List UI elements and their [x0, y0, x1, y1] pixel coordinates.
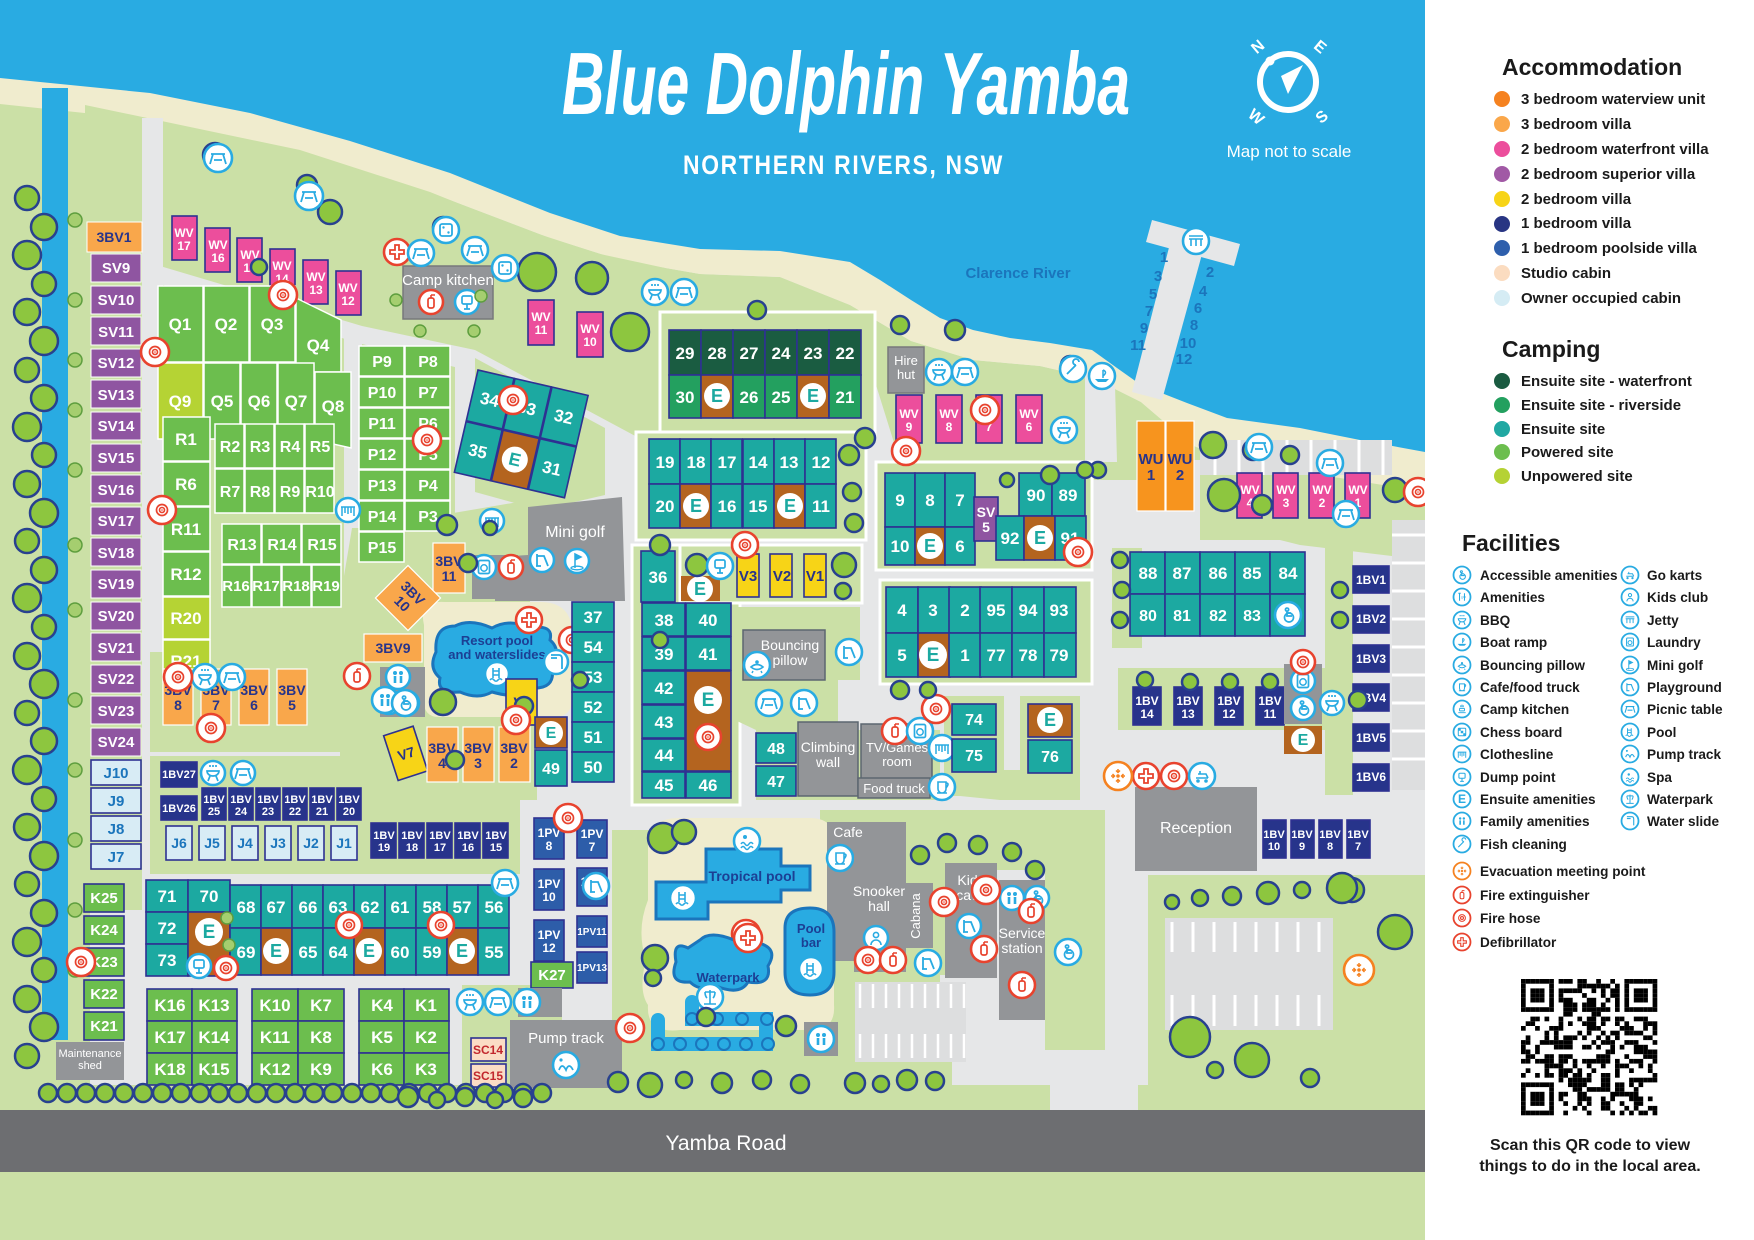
svg-text:Map not to scale: Map not to scale	[1227, 142, 1352, 161]
svg-text:R18: R18	[282, 578, 310, 595]
svg-text:Hirehut: Hirehut	[894, 353, 918, 382]
svg-text:Camp kitchen: Camp kitchen	[402, 272, 494, 289]
svg-text:49: 49	[542, 761, 560, 778]
svg-text:76: 76	[1041, 749, 1059, 766]
svg-text:Fish cleaning: Fish cleaning	[1480, 837, 1567, 852]
svg-text:E: E	[1458, 792, 1466, 806]
svg-text:27: 27	[740, 344, 759, 363]
svg-text:V1: V1	[806, 568, 824, 585]
svg-text:SV13: SV13	[98, 387, 135, 404]
svg-text:P15: P15	[368, 540, 397, 557]
svg-text:3: 3	[1154, 268, 1162, 285]
svg-text:E: E	[694, 579, 706, 599]
svg-text:15: 15	[749, 497, 768, 516]
svg-text:Studio cabin: Studio cabin	[1521, 265, 1611, 282]
svg-text:85: 85	[1243, 564, 1262, 583]
svg-text:64: 64	[329, 943, 348, 962]
svg-text:K8: K8	[310, 1028, 332, 1047]
svg-text:E: E	[363, 941, 375, 961]
svg-text:Q7: Q7	[285, 392, 308, 411]
svg-text:Jetty: Jetty	[1647, 613, 1679, 628]
svg-text:Cafe: Cafe	[833, 824, 863, 840]
svg-text:K4: K4	[371, 996, 393, 1015]
svg-text:Q9: Q9	[169, 392, 192, 411]
svg-text:E: E	[270, 941, 282, 961]
svg-text:R1: R1	[175, 430, 197, 449]
svg-text:V2: V2	[773, 568, 791, 585]
svg-text:J10: J10	[103, 765, 128, 782]
svg-text:52: 52	[584, 698, 603, 717]
svg-text:SV10: SV10	[98, 292, 135, 309]
svg-text:19: 19	[656, 453, 675, 472]
svg-text:E: E	[203, 922, 216, 943]
svg-text:Powered site: Powered site	[1521, 444, 1614, 461]
svg-text:Bouncing pillow: Bouncing pillow	[1480, 658, 1585, 673]
svg-text:Servicestation: Servicestation	[999, 925, 1046, 956]
svg-text:88: 88	[1139, 564, 1158, 583]
svg-text:90: 90	[1027, 486, 1046, 505]
svg-text:44: 44	[655, 746, 674, 765]
svg-text:26: 26	[740, 388, 759, 407]
svg-text:Go karts: Go karts	[1647, 568, 1702, 583]
svg-text:J4: J4	[237, 835, 253, 851]
svg-text:1BV2: 1BV2	[1356, 612, 1386, 626]
svg-text:37: 37	[584, 608, 603, 627]
svg-text:77: 77	[987, 646, 1006, 665]
svg-text:K1: K1	[415, 996, 437, 1015]
svg-text:K10: K10	[259, 996, 290, 1015]
svg-text:Pump track: Pump track	[1647, 747, 1721, 762]
svg-text:1BV26: 1BV26	[162, 803, 196, 815]
svg-text:72: 72	[158, 919, 177, 938]
svg-text:3: 3	[928, 601, 937, 620]
svg-text:83: 83	[1243, 608, 1261, 625]
svg-text:K13: K13	[198, 996, 229, 1015]
svg-text:K14: K14	[198, 1028, 230, 1047]
svg-text:47: 47	[767, 774, 785, 791]
svg-text:59: 59	[423, 943, 442, 962]
svg-text:Q8: Q8	[322, 397, 345, 416]
svg-text:Mini golf: Mini golf	[545, 524, 605, 541]
svg-text:9: 9	[895, 491, 904, 510]
svg-text:1BV27: 1BV27	[162, 769, 196, 781]
svg-text:J2: J2	[303, 835, 319, 851]
svg-text:10: 10	[891, 537, 910, 556]
svg-text:J5: J5	[204, 835, 220, 851]
svg-text:K12: K12	[259, 1060, 290, 1079]
svg-text:40: 40	[699, 611, 718, 630]
svg-text:21: 21	[836, 388, 855, 407]
svg-text:50: 50	[584, 758, 603, 777]
svg-text:Clarence River: Clarence River	[965, 265, 1070, 282]
svg-text:SV19: SV19	[98, 576, 135, 593]
svg-text:82: 82	[1209, 608, 1227, 625]
svg-text:Water slide: Water slide	[1647, 814, 1719, 829]
svg-text:94: 94	[1019, 601, 1038, 620]
svg-text:K24: K24	[90, 922, 118, 939]
svg-text:R19: R19	[312, 578, 340, 595]
svg-text:P8: P8	[418, 354, 438, 371]
svg-text:R6: R6	[175, 475, 197, 494]
svg-text:18: 18	[687, 453, 706, 472]
svg-text:R16: R16	[222, 578, 250, 595]
svg-text:SV9: SV9	[102, 260, 130, 277]
svg-text:K16: K16	[154, 996, 185, 1015]
svg-text:Q4: Q4	[307, 336, 330, 355]
svg-text:86: 86	[1209, 564, 1228, 583]
svg-text:2: 2	[960, 601, 969, 620]
svg-text:E: E	[784, 496, 796, 516]
svg-text:Pool: Pool	[1647, 725, 1676, 740]
svg-text:1: 1	[1160, 249, 1168, 266]
svg-text:SC15: SC15	[473, 1069, 503, 1083]
svg-text:6: 6	[955, 537, 964, 556]
svg-text:SV20: SV20	[98, 608, 135, 625]
svg-text:R9: R9	[280, 484, 301, 501]
svg-text:1 bedroom poolside villa: 1 bedroom poolside villa	[1521, 240, 1698, 257]
svg-text:K15: K15	[198, 1060, 229, 1079]
svg-text:62: 62	[361, 898, 380, 917]
svg-text:K11: K11	[260, 1028, 290, 1047]
svg-text:2 bedroom villa: 2 bedroom villa	[1521, 191, 1632, 208]
svg-text:Ensuite amenities: Ensuite amenities	[1480, 792, 1596, 807]
svg-text:K5: K5	[371, 1028, 393, 1047]
svg-text:73: 73	[158, 951, 177, 970]
svg-text:3BV9: 3BV9	[375, 640, 410, 656]
svg-text:J6: J6	[171, 835, 187, 851]
svg-text:SV12: SV12	[98, 355, 135, 372]
svg-text:1BV5: 1BV5	[1356, 731, 1386, 745]
svg-text:11: 11	[1130, 337, 1146, 354]
svg-text:8: 8	[925, 491, 934, 510]
svg-text:Camp kitchen: Camp kitchen	[1480, 702, 1569, 717]
svg-text:11: 11	[812, 497, 830, 516]
svg-text:K3: K3	[415, 1060, 437, 1079]
svg-text:2 bedroom superior villa: 2 bedroom superior villa	[1521, 166, 1696, 183]
svg-text:Cabana: Cabana	[908, 892, 923, 938]
svg-text:Ensuite site: Ensuite site	[1521, 421, 1605, 438]
svg-text:P12: P12	[368, 447, 397, 464]
svg-text:P13: P13	[368, 478, 397, 495]
svg-text:Blue Dolphin Yamba: Blue Dolphin Yamba	[562, 34, 1130, 133]
svg-text:10: 10	[1180, 335, 1197, 352]
svg-text:9: 9	[1140, 320, 1148, 337]
svg-text:66: 66	[299, 898, 318, 917]
svg-text:2: 2	[1206, 264, 1214, 281]
svg-text:Playground: Playground	[1647, 680, 1722, 695]
svg-text:12: 12	[1176, 351, 1193, 368]
svg-text:29: 29	[676, 344, 695, 363]
svg-text:Reception: Reception	[1160, 820, 1232, 837]
svg-text:74: 74	[965, 712, 983, 729]
svg-text:61: 61	[391, 898, 410, 917]
svg-text:1PV11: 1PV11	[577, 927, 607, 938]
svg-text:Camping: Camping	[1502, 336, 1600, 362]
svg-text:Ensuite site - waterfront: Ensuite site - waterfront	[1521, 373, 1692, 390]
svg-text:E: E	[546, 725, 557, 742]
svg-text:1BV3: 1BV3	[1356, 652, 1386, 666]
svg-text:K25: K25	[90, 890, 118, 907]
svg-text:2 bedroom waterfront villa: 2 bedroom waterfront villa	[1521, 141, 1709, 158]
svg-text:Clothesline: Clothesline	[1480, 747, 1554, 762]
svg-text:Q3: Q3	[261, 315, 284, 334]
svg-text:57: 57	[453, 898, 472, 917]
svg-text:6: 6	[1194, 300, 1202, 317]
svg-text:E: E	[924, 536, 936, 556]
svg-text:R17: R17	[252, 578, 280, 595]
svg-text:E: E	[927, 645, 940, 666]
svg-text:Kids club: Kids club	[1647, 590, 1708, 605]
svg-text:Poolbar: Poolbar	[797, 921, 825, 950]
svg-text:SV15: SV15	[98, 450, 135, 467]
svg-text:14: 14	[749, 453, 768, 472]
svg-text:Waterpark: Waterpark	[1647, 792, 1713, 807]
svg-text:R5: R5	[310, 439, 331, 456]
svg-text:79: 79	[1050, 646, 1069, 665]
svg-text:Boat ramp: Boat ramp	[1480, 635, 1547, 650]
svg-text:36: 36	[649, 568, 668, 587]
svg-text:Family amenities: Family amenities	[1480, 814, 1590, 829]
svg-text:K18: K18	[154, 1060, 185, 1079]
svg-text:5: 5	[1149, 286, 1157, 303]
svg-text:45: 45	[655, 776, 674, 795]
svg-text:BBQ: BBQ	[1480, 613, 1510, 628]
svg-text:Defibrillator: Defibrillator	[1480, 935, 1557, 950]
svg-text:Dump point: Dump point	[1480, 770, 1556, 785]
svg-text:20: 20	[656, 497, 675, 516]
svg-text:54: 54	[584, 638, 603, 657]
svg-text:SV16: SV16	[98, 482, 135, 499]
svg-text:95: 95	[987, 601, 1006, 620]
svg-text:Evacuation meeting point: Evacuation meeting point	[1480, 864, 1646, 879]
svg-text:13: 13	[780, 453, 799, 472]
svg-text:E: E	[1298, 732, 1309, 749]
svg-text:J7: J7	[108, 849, 125, 866]
svg-text:68: 68	[237, 898, 256, 917]
svg-text:E: E	[1034, 528, 1046, 548]
svg-text:Yamba Road: Yamba Road	[665, 1132, 786, 1155]
svg-text:R13: R13	[227, 537, 256, 554]
svg-text:SV17: SV17	[98, 513, 135, 530]
svg-text:78: 78	[1019, 646, 1038, 665]
svg-text:K6: K6	[371, 1060, 393, 1079]
svg-text:89: 89	[1059, 486, 1078, 505]
svg-text:Amenities: Amenities	[1480, 590, 1545, 605]
svg-text:8: 8	[1190, 317, 1198, 334]
svg-text:51: 51	[584, 728, 603, 747]
svg-text:P10: P10	[368, 385, 397, 402]
svg-text:7: 7	[1145, 303, 1153, 320]
svg-text:24: 24	[772, 344, 791, 363]
svg-text:P7: P7	[418, 385, 438, 402]
svg-text:R20: R20	[170, 609, 201, 628]
svg-text:K22: K22	[90, 986, 118, 1003]
svg-text:12: 12	[812, 453, 831, 472]
svg-text:92: 92	[1001, 529, 1020, 548]
svg-text:65: 65	[299, 943, 318, 962]
svg-text:Laundry: Laundry	[1647, 635, 1701, 650]
svg-text:Unpowered site: Unpowered site	[1521, 468, 1633, 485]
svg-text:22: 22	[836, 344, 855, 363]
svg-text:Q2: Q2	[215, 315, 238, 334]
svg-text:60: 60	[391, 943, 410, 962]
svg-text:Food truck: Food truck	[863, 781, 925, 796]
svg-text:K2: K2	[415, 1028, 437, 1047]
svg-text:84: 84	[1279, 564, 1298, 583]
svg-text:7: 7	[955, 491, 964, 510]
svg-text:Fire hose: Fire hose	[1480, 911, 1541, 926]
svg-text:Waterpark: Waterpark	[696, 970, 760, 985]
svg-text:Mini golf: Mini golf	[1647, 658, 1703, 673]
svg-text:Tropical pool: Tropical pool	[708, 868, 795, 884]
svg-text:R2: R2	[220, 439, 241, 456]
svg-text:SV22: SV22	[98, 671, 135, 688]
svg-text:NORTHERN RIVERS, NSW: NORTHERN RIVERS, NSW	[683, 150, 1004, 180]
svg-text:R14: R14	[267, 537, 296, 554]
svg-text:Ensuite site - riverside: Ensuite site - riverside	[1521, 397, 1681, 414]
svg-text:30: 30	[676, 388, 695, 407]
svg-text:3 bedroom villa: 3 bedroom villa	[1521, 116, 1632, 133]
svg-text:93: 93	[1050, 601, 1069, 620]
svg-text:Facilities: Facilities	[1462, 530, 1560, 556]
svg-text:80: 80	[1139, 608, 1157, 625]
svg-text:42: 42	[655, 679, 674, 698]
svg-text:41: 41	[699, 645, 718, 664]
svg-text:SV11: SV11	[98, 324, 134, 341]
svg-text:5: 5	[897, 646, 906, 665]
svg-text:Owner occupied cabin: Owner occupied cabin	[1521, 290, 1681, 307]
svg-text:K27: K27	[538, 967, 566, 984]
svg-text:R3: R3	[250, 439, 271, 456]
svg-text:P9: P9	[372, 354, 392, 371]
svg-text:E: E	[456, 941, 468, 961]
svg-text:16: 16	[718, 497, 737, 516]
svg-text:67: 67	[267, 898, 286, 917]
svg-text:♀: ♀	[1460, 595, 1464, 601]
svg-text:SV14: SV14	[98, 418, 135, 435]
svg-text:J3: J3	[270, 835, 286, 851]
svg-text:1BV1: 1BV1	[1356, 573, 1386, 587]
svg-text:E: E	[711, 386, 723, 406]
svg-text:K9: K9	[310, 1060, 332, 1079]
svg-text:56: 56	[485, 898, 504, 917]
svg-text:28: 28	[708, 344, 727, 363]
svg-text:1: 1	[960, 646, 969, 665]
svg-text:R8: R8	[250, 484, 271, 501]
svg-text:1 bedroom villa: 1 bedroom villa	[1521, 215, 1632, 232]
svg-text:K21: K21	[90, 1018, 118, 1035]
svg-text:Q5: Q5	[211, 392, 234, 411]
svg-text:4: 4	[897, 601, 907, 620]
svg-text:R15: R15	[307, 537, 336, 554]
svg-text:Accessible amenities: Accessible amenities	[1480, 568, 1618, 583]
svg-text:Q1: Q1	[169, 315, 192, 334]
svg-text:55: 55	[485, 943, 504, 962]
svg-text:R11: R11	[171, 520, 201, 539]
svg-text:23: 23	[804, 344, 823, 363]
svg-text:R7: R7	[220, 484, 241, 501]
svg-text:Q6: Q6	[248, 392, 271, 411]
svg-text:K7: K7	[310, 996, 332, 1015]
svg-text:R10: R10	[305, 484, 334, 501]
svg-text:E: E	[807, 386, 819, 406]
svg-text:3BV1: 3BV1	[96, 229, 131, 245]
svg-text:70: 70	[200, 887, 219, 906]
svg-text:P11: P11	[368, 416, 396, 433]
svg-text:71: 71	[158, 887, 177, 906]
svg-text:Spa: Spa	[1647, 770, 1672, 785]
svg-text:69: 69	[237, 943, 256, 962]
svg-text:P14: P14	[368, 509, 397, 526]
svg-text:SV21: SV21	[98, 640, 135, 657]
svg-text:Fire extinguisher: Fire extinguisher	[1480, 888, 1590, 903]
svg-text:1BV6: 1BV6	[1356, 770, 1386, 784]
svg-text:SV23: SV23	[98, 703, 135, 720]
svg-text:Accommodation: Accommodation	[1502, 54, 1682, 80]
svg-text:SV24: SV24	[98, 734, 135, 751]
svg-text:38: 38	[655, 611, 674, 630]
svg-text:R12: R12	[170, 565, 201, 584]
svg-text:J1: J1	[336, 835, 352, 851]
svg-text:Cafe/food truck: Cafe/food truck	[1480, 680, 1580, 695]
svg-text:E: E	[702, 690, 715, 711]
svg-text:Chess board: Chess board	[1480, 725, 1562, 740]
svg-text:17: 17	[718, 453, 737, 472]
svg-text:SC14: SC14	[473, 1043, 503, 1057]
svg-text:25: 25	[772, 388, 791, 407]
svg-text:Pump track: Pump track	[528, 1030, 604, 1047]
svg-text:Picnic table: Picnic table	[1647, 702, 1723, 717]
svg-text:K17: K17	[154, 1028, 185, 1047]
svg-text:1PV13: 1PV13	[577, 963, 607, 974]
svg-text:E: E	[690, 496, 702, 516]
svg-text:P3: P3	[418, 509, 438, 526]
svg-text:87: 87	[1173, 564, 1192, 583]
svg-text:43: 43	[655, 713, 674, 732]
svg-text:P4: P4	[418, 478, 438, 495]
svg-text:48: 48	[767, 741, 785, 758]
svg-text:V3: V3	[739, 568, 757, 585]
svg-text:J8: J8	[108, 821, 125, 838]
svg-text:E: E	[1044, 710, 1056, 730]
svg-text:SV18: SV18	[98, 545, 135, 562]
svg-text:46: 46	[699, 776, 718, 795]
svg-text:4: 4	[1199, 283, 1208, 300]
svg-text:Resort pooland waterslides: Resort pooland waterslides	[448, 633, 546, 662]
svg-text:R4: R4	[280, 439, 301, 456]
svg-text:3 bedroom waterview unit: 3 bedroom waterview unit	[1521, 91, 1705, 108]
svg-text:81: 81	[1173, 608, 1191, 625]
svg-text:75: 75	[965, 748, 983, 765]
svg-text:J9: J9	[108, 793, 125, 810]
